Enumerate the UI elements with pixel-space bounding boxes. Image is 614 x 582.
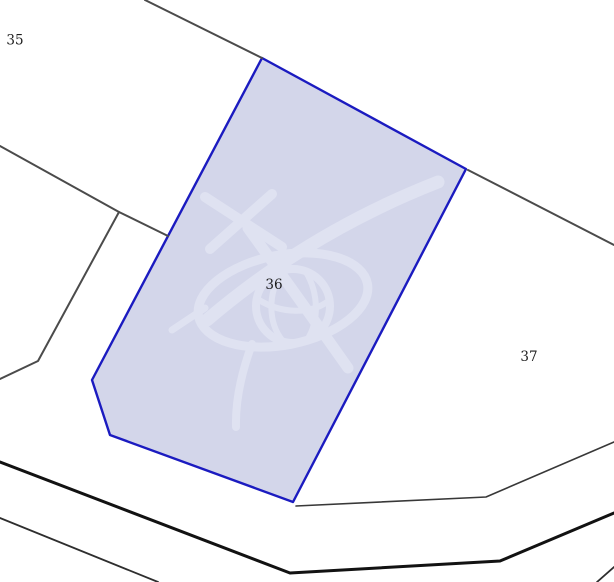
boundary-line-left-lower bbox=[0, 212, 119, 379]
cadastral-map-canvas: 35 36 37 bbox=[0, 0, 614, 582]
road-edge-line-lower-left bbox=[0, 518, 158, 582]
parcel-label-35: 35 bbox=[6, 33, 23, 49]
cadastral-map-viewport: 35 36 37 bbox=[0, 0, 614, 582]
boundary-line-bottom-right bbox=[296, 442, 614, 506]
boundary-line-left bbox=[0, 146, 168, 236]
road-edge-line bbox=[0, 462, 614, 573]
boundary-line-top bbox=[145, 0, 262, 58]
boundary-line-top-right bbox=[468, 170, 614, 245]
parcel-label-37: 37 bbox=[520, 349, 537, 365]
parcel-label-36: 36 bbox=[265, 277, 282, 293]
road-edge-line-corner bbox=[597, 567, 614, 582]
